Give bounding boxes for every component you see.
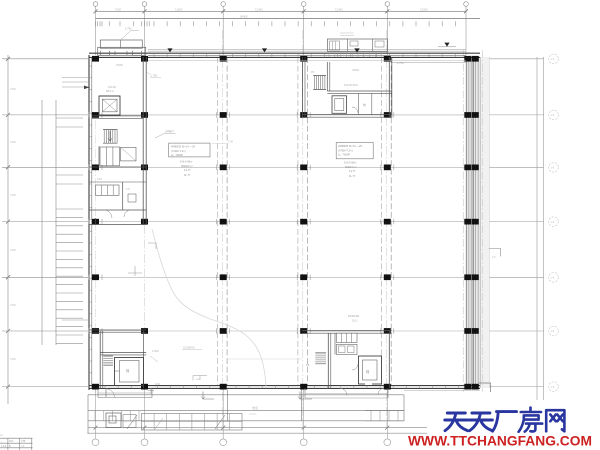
svg-text:100.00: 100.00 — [108, 85, 116, 89]
svg-text:HRB335 Φ<14 —24: HRB335 Φ<14 —24 — [171, 145, 196, 149]
svg-text:4.9: 4.9 — [126, 188, 130, 191]
svg-text:1-6: 1-6 — [551, 113, 555, 117]
svg-text:F5: F5 — [306, 363, 310, 367]
svg-text:1-6: 1-6 — [551, 385, 555, 389]
svg-text:12200: 12200 — [420, 7, 428, 11]
svg-text:梯: 梯 — [363, 102, 366, 107]
svg-text:1-6: 1-6 — [551, 220, 555, 224]
svg-text:12400: 12400 — [335, 7, 343, 11]
svg-text:7200: 7200 — [115, 7, 122, 11]
svg-text:6.0t 4.05m: 6.0t 4.05m — [180, 160, 192, 164]
svg-text:坡道: 坡道 — [252, 405, 258, 410]
svg-text:14.77: 14.77 — [184, 168, 191, 172]
svg-text:6.00: 6.00 — [155, 382, 161, 386]
svg-text:9000/4 m³: 9000/4 m³ — [181, 164, 193, 168]
svg-text:4.5: 4.5 — [492, 256, 496, 259]
svg-text:4L.77: 4L.77 — [184, 173, 191, 177]
svg-text:15.000/4.5: 15.000/4.5 — [183, 347, 195, 350]
svg-text:9000/4 m³: 9000/4 m³ — [345, 165, 357, 169]
svg-text:1-6: 1-6 — [551, 276, 555, 280]
svg-text:13.6: 13.6 — [97, 178, 102, 181]
svg-text:(7400×7.2×): (7400×7.2×) — [171, 149, 186, 153]
svg-text:1-6: 1-6 — [551, 166, 555, 170]
svg-text:1F±0.00: 1F±0.00 — [348, 314, 359, 318]
svg-text:58.9 m: 58.9 m — [106, 89, 114, 93]
svg-text:LL: 7600F: LL: 7600F — [338, 153, 350, 157]
svg-text:1.756: 1.756 — [151, 74, 158, 78]
svg-text:15A: 15A — [9, 440, 14, 443]
svg-text:1-6: 1-6 — [551, 329, 555, 333]
svg-text:12400: 12400 — [255, 7, 263, 11]
svg-text:1.756: 1.756 — [165, 131, 172, 134]
svg-text:1.500: 1.500 — [152, 349, 159, 353]
svg-text:4L.77: 4L.77 — [349, 174, 356, 178]
svg-text:7900: 7900 — [10, 357, 16, 361]
svg-text:LL: 7600F: LL: 7600F — [171, 153, 183, 157]
svg-text:7F00: 7F00 — [352, 68, 359, 72]
svg-text:7F00: 7F00 — [116, 63, 123, 67]
svg-text:WWW.TTCHANGFANG.COM: WWW.TTCHANGFANG.COM — [408, 434, 592, 449]
svg-text:(7400×7.2×): (7400×7.2×) — [338, 148, 353, 152]
svg-text:17B: 17B — [21, 440, 26, 443]
svg-text:7900: 7900 — [10, 140, 16, 144]
svg-text:56400: 56400 — [240, 14, 248, 18]
svg-text:1-6: 1-6 — [551, 57, 555, 61]
svg-text:7900: 7900 — [10, 193, 16, 197]
svg-text:11800: 11800 — [175, 7, 183, 11]
svg-text:7900: 7900 — [10, 248, 16, 252]
svg-text:14.77: 14.77 — [349, 169, 356, 173]
svg-text:1.756: 1.756 — [125, 27, 132, 31]
svg-text:-1.756: -1.756 — [396, 61, 404, 65]
svg-text:6.0t 4.05m: 6.0t 4.05m — [344, 161, 356, 165]
svg-text:i=10%: i=10% — [249, 412, 257, 416]
svg-text:4 9 6: 4 9 6 — [1, 445, 7, 448]
svg-text:(9.1): (9.1) — [352, 319, 357, 323]
svg-text:100.00 58.9: 100.00 58.9 — [344, 83, 358, 87]
svg-text:7.00: 7.00 — [228, 140, 234, 144]
svg-text:7900: 7900 — [10, 87, 16, 91]
svg-text:HRB335 Φ<14 —25: HRB335 Φ<14 —25 — [338, 144, 363, 148]
svg-text:7900: 7900 — [10, 303, 16, 307]
